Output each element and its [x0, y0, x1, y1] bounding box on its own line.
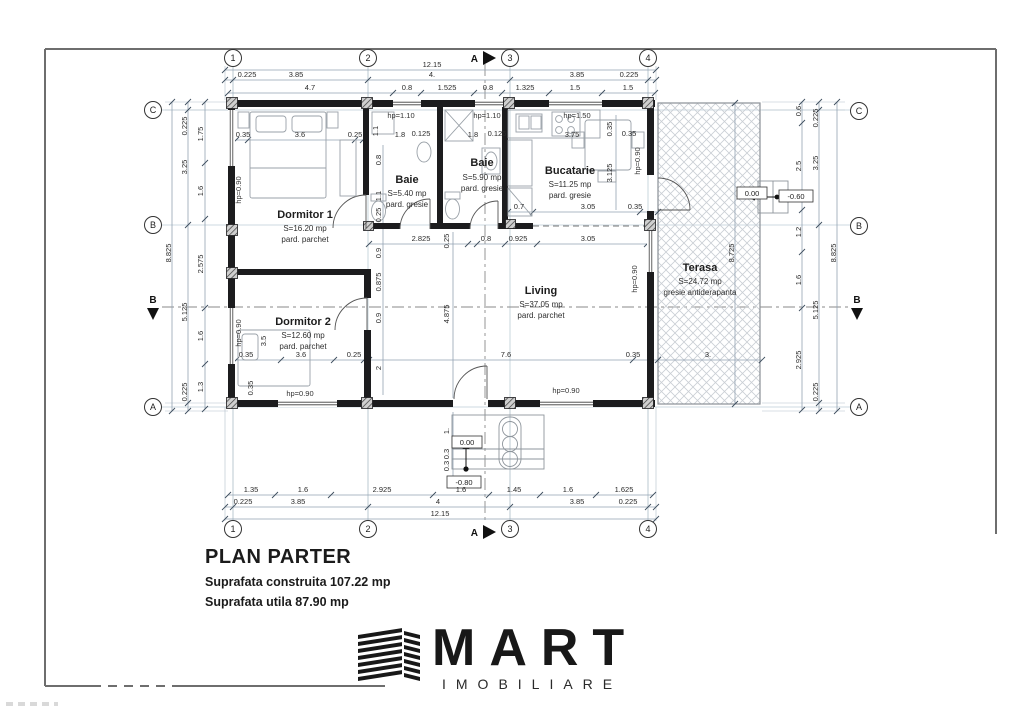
dim-label: 0.9	[374, 248, 383, 258]
axis-label: 3	[507, 524, 512, 534]
axis-label: 3	[507, 53, 512, 63]
dim-label: 0.225	[238, 70, 257, 79]
section-label: A	[471, 528, 478, 539]
dim-label: 0.875	[374, 273, 383, 292]
hp-label: hp=0.90	[630, 265, 639, 292]
dim-label: 0.35	[622, 129, 637, 138]
level-label: 0.00	[745, 189, 760, 198]
dim-label: 3.85	[291, 497, 306, 506]
dim-label: 1.525	[438, 83, 457, 92]
room-name: Living	[525, 285, 557, 297]
dim-label: 8.825	[164, 244, 173, 263]
room-area: S=5.40 mp	[388, 189, 427, 198]
dim-label: 1.8	[468, 130, 478, 139]
hp-label: hp=0.90	[234, 176, 243, 203]
hp-label: hp=0.90	[633, 147, 642, 174]
dim-label: 0.35	[236, 130, 251, 139]
dim-label: 3.05	[581, 202, 596, 211]
dim-label: 1.6	[298, 485, 308, 494]
room-name: Baie	[395, 174, 418, 186]
room-name: Dormitor 1	[277, 209, 333, 221]
room-area: S=11.25 mp	[549, 180, 592, 189]
dim-label: 4.	[429, 70, 435, 79]
dim-label: 1.2	[794, 227, 803, 237]
room-area: S=5.90 mp	[463, 173, 502, 182]
plan-title: PLAN PARTER	[205, 546, 390, 569]
dim-label: 0.25	[347, 350, 362, 359]
room-area: S=12.60 mp	[281, 331, 325, 340]
dim-label: 1.1	[371, 126, 380, 136]
dim-label: 0.8	[374, 155, 383, 165]
dim-label: 3.75	[565, 130, 580, 139]
dim-label: 1.5	[623, 83, 633, 92]
dim-label: 3.05	[581, 234, 596, 243]
room-area: S=16.20 mp	[283, 224, 327, 233]
dim-label: 2	[374, 366, 383, 370]
dim-label: 0.3	[442, 449, 451, 459]
dim-label: 3.5	[259, 336, 268, 346]
hp-label: hp=0.90	[286, 389, 313, 398]
dim-label: 2.925	[794, 351, 803, 370]
dim-label: 1.75	[196, 127, 205, 142]
dim-label: 1.5	[570, 83, 580, 92]
logo-text: MART IMOBILIARE	[432, 622, 638, 692]
hp-label: hp=0.90	[552, 386, 579, 395]
dim-label: 0.125	[412, 129, 431, 138]
dim-label: 1.6	[456, 485, 466, 494]
dim-label: 8.825	[829, 244, 838, 263]
room-floor: pard. parchet	[517, 311, 565, 320]
dim-label: 2.925	[373, 485, 392, 494]
walls	[228, 100, 655, 407]
dim-label: 4	[436, 497, 440, 506]
dim-label: 2.825	[412, 234, 431, 243]
dim-label: 1.3	[196, 382, 205, 392]
dim-label: 1.	[442, 428, 451, 434]
room-name: Dormitor 2	[275, 316, 331, 328]
room-floor: pard. gresie	[386, 200, 429, 209]
dim-label: 5.125	[811, 301, 820, 320]
dim-label: 1.1	[374, 191, 383, 201]
dim-label: 0.35	[605, 122, 614, 137]
dim-label: 7.6	[501, 350, 511, 359]
dim-label: 3.25	[811, 156, 820, 171]
room-name: Bucatarie	[545, 165, 595, 177]
dim-label: 0.6	[794, 106, 803, 116]
floor-plan-page: 0.00 -0.80 0.00 -0.60 1 2 3 4 1 2 3 4 C …	[0, 0, 1031, 720]
section-label: B	[853, 295, 860, 306]
dim-label: 0.25	[442, 234, 451, 249]
section-label: A	[471, 54, 478, 65]
dim-label: 5.125	[180, 303, 189, 322]
dim-label: 0.25	[374, 208, 383, 223]
dim-label: 1.45	[507, 485, 522, 494]
usable-area-text: Suprafata utila 87.90 mp	[205, 595, 390, 609]
title-block: PLAN PARTER Suprafata construita 107.22 …	[205, 546, 390, 609]
dim-label: 1.35	[244, 485, 259, 494]
dim-label: 3.85	[289, 70, 304, 79]
room-floor: pard. gresie	[461, 184, 504, 193]
dim-label: 3.125	[605, 164, 614, 183]
axis-label: B	[150, 220, 156, 230]
brand-name: MART	[432, 622, 638, 674]
axis-label: 1	[230, 524, 235, 534]
room-area: S=24.72 mp	[678, 277, 722, 286]
dim-label: 1.8	[395, 130, 405, 139]
dim-label: 0.225	[811, 383, 820, 402]
dim-label: 1.6	[196, 331, 205, 341]
level-label: -0.60	[787, 192, 804, 201]
axis-label: 1	[230, 53, 235, 63]
dim-label: 3.85	[570, 497, 585, 506]
dim-label: 0.8	[483, 83, 493, 92]
dim-label: 0.8	[402, 83, 412, 92]
dim-label: 2.5	[794, 161, 803, 171]
axis-label: 2	[365, 524, 370, 534]
dim-label: 3.6	[295, 130, 305, 139]
axis-label: C	[150, 105, 157, 115]
hp-label: hp=0.90	[234, 319, 243, 346]
dim-label: 1.325	[516, 83, 535, 92]
hp-label: hp=1.10	[473, 111, 500, 120]
dim-label: 0.35	[626, 350, 641, 359]
dim-label: 2.575	[196, 255, 205, 274]
hp-label: hp=1.50	[563, 111, 590, 120]
dim-label: 1.6	[196, 186, 205, 196]
axis-label: 2	[365, 53, 370, 63]
dim-label: 12.15	[423, 60, 442, 69]
dim-label: 0.225	[811, 109, 820, 128]
dim-label: 0.225	[234, 497, 253, 506]
room-name: Terasa	[683, 262, 719, 274]
axis-label: 4	[645, 524, 650, 534]
dim-label: 8.725	[727, 244, 736, 263]
dim-label: 4.875	[442, 305, 451, 324]
dim-label: 0.225	[180, 383, 189, 402]
dim-label: 0.35	[246, 381, 255, 396]
room-floor: pard. gresie	[549, 191, 592, 200]
room-floor: gresie antiderapanta	[664, 288, 737, 297]
dim-label: 0.9	[374, 313, 383, 323]
dim-label: 0.225	[180, 117, 189, 136]
dim-label: 3.	[705, 350, 711, 359]
dim-label: 0.225	[620, 70, 639, 79]
dim-label: 0.8	[481, 234, 491, 243]
dim-label: 1.6	[563, 485, 573, 494]
brand-subtitle: IMOBILIARE	[432, 676, 638, 692]
dim-label: 1.6	[794, 275, 803, 285]
dim-label: 4.7	[305, 83, 315, 92]
agency-logo: MART IMOBILIARE	[352, 622, 638, 694]
axis-label: C	[856, 106, 863, 116]
built-area-text: Suprafata construita 107.22 mp	[205, 575, 390, 589]
level-label: 0.00	[460, 438, 475, 447]
dim-label: 3.6	[296, 350, 306, 359]
dim-label: 0.7	[514, 202, 524, 211]
room-floor: pard. parchet	[281, 235, 329, 244]
axis-label: 4	[645, 53, 650, 63]
dim-label: 0.35	[239, 350, 254, 359]
room-area: S=37.05 mp	[519, 300, 563, 309]
dim-label: 3.85	[570, 70, 585, 79]
dim-label: 0.3	[442, 461, 451, 471]
axis-label: A	[150, 402, 156, 412]
axis-label: A	[856, 402, 862, 412]
hp-label: hp=1.10	[387, 111, 414, 120]
dim-label: 0.225	[619, 497, 638, 506]
dim-label: 0.125	[488, 129, 507, 138]
dim-label: 12.15	[431, 509, 450, 518]
section-label: B	[149, 295, 156, 306]
floor-plan-svg: 0.00 -0.80 0.00 -0.60 1 2 3 4 1 2 3 4 C …	[0, 0, 1031, 720]
dim-label: 0.25	[348, 130, 363, 139]
dim-label: 3.25	[180, 160, 189, 175]
axis-label: B	[856, 221, 862, 231]
building-icon	[352, 622, 426, 694]
dim-label: 1.625	[615, 485, 634, 494]
dim-label: 0.925	[509, 234, 528, 243]
dim-label: 0.35	[628, 202, 643, 211]
room-name: Baie	[470, 157, 493, 169]
